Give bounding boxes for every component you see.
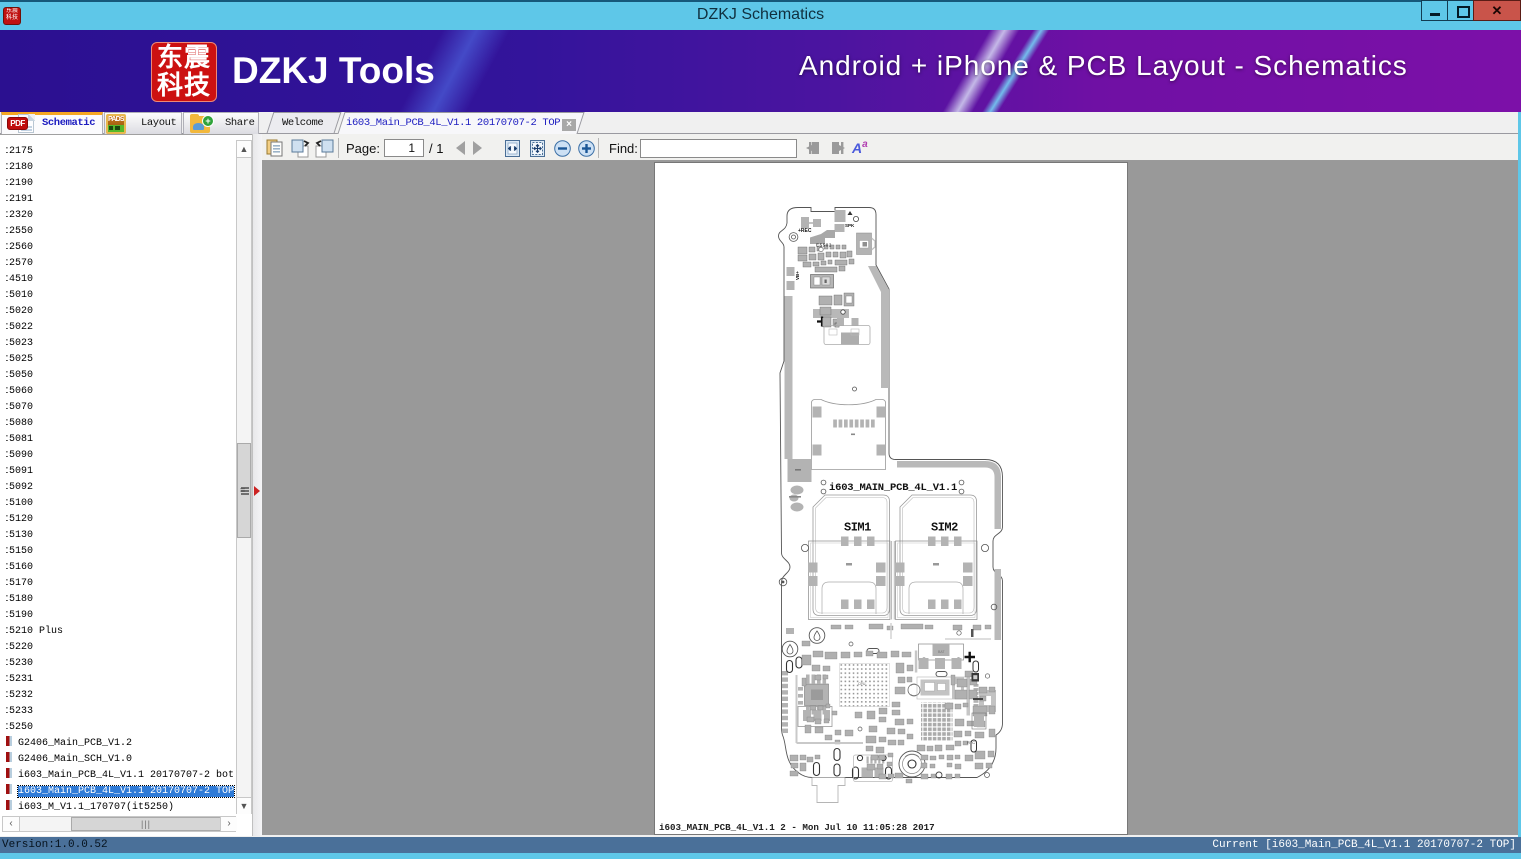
svg-text:SIM2: SIM2	[931, 521, 958, 535]
svg-text:E5502: E5502	[816, 243, 832, 248]
svg-text:+REC: +REC	[798, 228, 812, 234]
svg-text:CPU: CPU	[858, 682, 866, 686]
svg-text:RTC: RTC	[967, 740, 975, 745]
svg-text:SIM1: SIM1	[844, 521, 871, 535]
svg-text:i603_MAIN_PCB_4L_V1.1 2 - Mon: i603_MAIN_PCB_4L_V1.1 2 - Mon Jul 10 11:…	[659, 822, 935, 833]
svg-text:SPK: SPK	[845, 223, 855, 228]
svg-text:BAT: BAT	[938, 650, 945, 654]
svg-text:VB+: VB+	[795, 271, 800, 280]
svg-text:i603_MAIN_PCB_4L_V1.1: i603_MAIN_PCB_4L_V1.1	[829, 482, 957, 494]
